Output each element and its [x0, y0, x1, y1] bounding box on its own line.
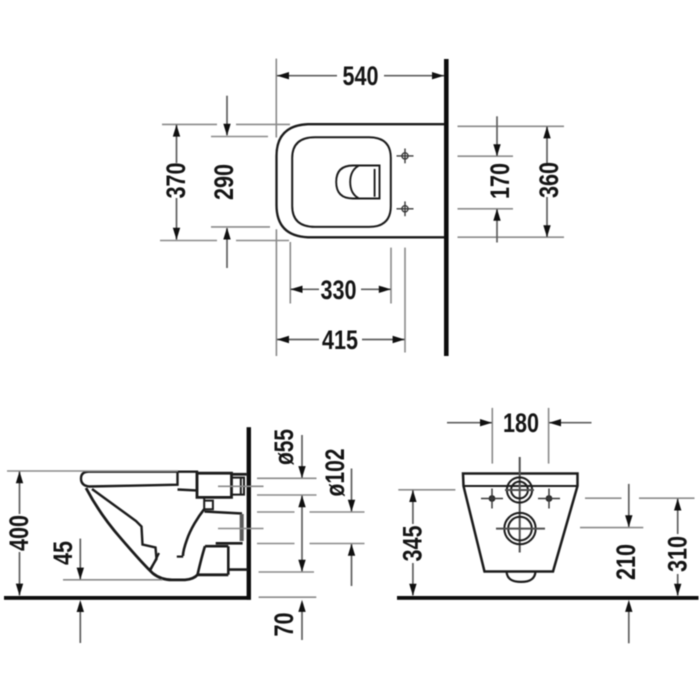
- svg-text:180: 180: [503, 408, 539, 438]
- svg-text:415: 415: [322, 325, 358, 355]
- svg-text:70: 70: [269, 613, 299, 637]
- svg-text:290: 290: [209, 164, 239, 200]
- svg-text:ø55: ø55: [269, 429, 299, 465]
- svg-text:170: 170: [485, 163, 515, 199]
- svg-text:310: 310: [662, 536, 692, 572]
- svg-text:210: 210: [611, 544, 641, 580]
- svg-text:370: 370: [161, 163, 191, 199]
- svg-text:ø102: ø102: [320, 449, 350, 497]
- svg-text:360: 360: [534, 162, 564, 198]
- svg-text:400: 400: [4, 515, 34, 551]
- svg-text:330: 330: [321, 275, 357, 305]
- svg-text:345: 345: [398, 526, 428, 562]
- svg-text:45: 45: [48, 541, 78, 565]
- svg-text:540: 540: [343, 61, 379, 91]
